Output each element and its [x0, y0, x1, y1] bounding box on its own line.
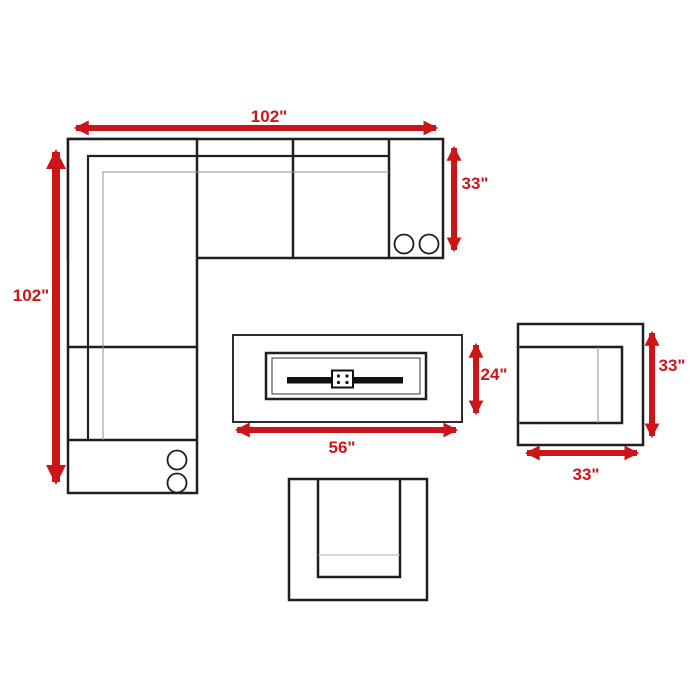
console-cupholder-icon [395, 235, 414, 254]
igniter-dot [345, 374, 348, 377]
igniter-dot [345, 381, 348, 384]
armchair [289, 479, 427, 600]
club-chair-outline [518, 324, 643, 445]
sectional-width-dimension: 102" [76, 107, 436, 128]
diagram-canvas: 102" 33" 102" 56" 24" 33" [0, 0, 700, 700]
club-chair-width-dimension: 33" [527, 453, 637, 484]
furniture-dimension-diagram: 102" 33" 102" 56" 24" 33" [0, 0, 700, 700]
armchair-outline [289, 479, 427, 600]
sectional-depth-label: 33" [462, 174, 489, 193]
fire-pit-depth-label: 24" [481, 365, 508, 384]
fire-pit-table [233, 335, 462, 422]
igniter-dot [337, 374, 340, 377]
fire-pit-width-dimension: 56" [237, 430, 456, 457]
fire-pit-depth-dimension: 24" [476, 345, 507, 413]
igniter-dot [337, 381, 340, 384]
sectional-length-label: 102" [13, 286, 49, 305]
club-chair-depth-label: 33" [659, 356, 686, 375]
sectional-depth-dimension: 33" [454, 148, 488, 250]
console-cupholder-icon [420, 235, 439, 254]
club-chair-width-label: 33" [573, 465, 600, 484]
fire-pit-width-label: 56" [329, 438, 356, 457]
club-chair-depth-dimension: 33" [652, 333, 685, 436]
sectional-width-label: 102" [251, 107, 287, 126]
console-cupholder-icon [168, 451, 187, 470]
sectional-length-dimension: 102" [13, 152, 56, 482]
sectional-sofa [68, 139, 443, 493]
console-cupholder-icon [168, 474, 187, 493]
igniter-box [332, 371, 353, 388]
club-chair [518, 324, 643, 445]
